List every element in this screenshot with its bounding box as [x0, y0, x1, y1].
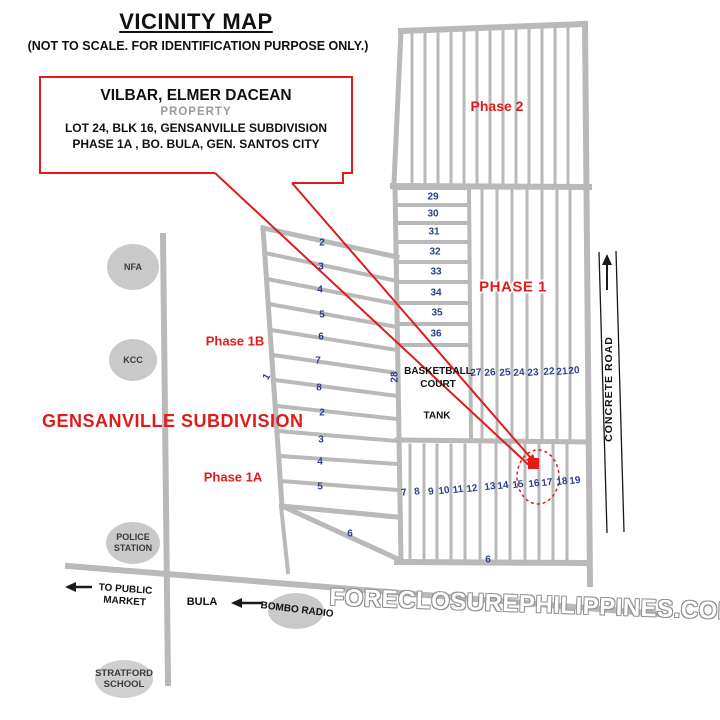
phase1b-label: Phase 1B [206, 334, 265, 349]
lot-number: 19 [569, 475, 582, 487]
stratford-line2: SCHOOL [104, 679, 145, 690]
lot-number: 29 [427, 192, 438, 203]
nfa-label: NFA [124, 262, 142, 272]
police-station-landmark: POLICE STATION [106, 522, 160, 564]
lots-7-19-dividers [410, 445, 567, 559]
tank-label: TANK [423, 411, 450, 422]
lot-number: 4 [317, 285, 323, 296]
phase1a-label: Phase 1A [204, 470, 263, 485]
lot-number: 12 [466, 483, 479, 495]
to-market-arrow-icon [65, 582, 76, 592]
lot-number: 2 [319, 238, 325, 249]
subject-lot-marker [528, 458, 539, 469]
lot-number: 4 [317, 457, 323, 468]
page-subtitle: (NOT TO SCALE. FOR IDENTIFICATION PURPOS… [0, 39, 396, 53]
lot-number: 31 [428, 227, 439, 238]
phase1-lot-dividers [482, 189, 570, 438]
lot-number: 7 [315, 356, 321, 367]
basketball-line2: COURT [404, 378, 472, 391]
lot-number: 3 [318, 435, 324, 446]
lot-number: 30 [427, 209, 438, 220]
property-owner: VILBAR, ELMER DACEAN [40, 86, 352, 105]
property-phase-line: PHASE 1A , BO. BULA, GEN. SANTOS CITY [40, 136, 352, 152]
lot-number: 33 [430, 267, 441, 278]
lot-number: 25 [499, 367, 511, 379]
lot-number: 26 [484, 367, 496, 379]
lot-number: 9 [427, 486, 434, 498]
subdivision-label: GENSANVILLE SUBDIVISION [42, 411, 304, 432]
lot-number: 22 [543, 366, 555, 378]
lot-number: 5 [319, 310, 325, 321]
phase2-label: Phase 2 [471, 98, 524, 114]
lot-number: 7 [400, 487, 407, 499]
lot-number: 24 [513, 367, 525, 379]
lot-number: 16 [528, 478, 541, 490]
bula-label: BULA [187, 596, 218, 608]
to-public-market-label: TO PUBLIC MARKET [97, 582, 152, 610]
vicinity-map: VICINITY MAP (NOT TO SCALE. FOR IDENTIFI… [0, 0, 720, 720]
lot-number: 6 [347, 529, 353, 540]
property-info-box: VILBAR, ELMER DACEAN PROPERTY LOT 24, BL… [40, 77, 352, 174]
police-station-label: POLICE STATION [114, 532, 152, 554]
lot-number: 21 [556, 366, 568, 378]
lot-number: 6 [318, 332, 324, 343]
left-strip-lines [263, 228, 400, 572]
lot-number: 8 [316, 383, 322, 394]
kcc-label: KCC [123, 355, 143, 365]
property-lot-line: LOT 24, BLK 16, GENSANVILLE SUBDIVISION [40, 120, 352, 136]
page-title: VICINITY MAP [40, 9, 352, 35]
lot-number: 13 [484, 481, 497, 493]
lot-number: 8 [413, 486, 420, 498]
lot-number: 18 [556, 476, 569, 488]
kcc-landmark: KCC [109, 339, 157, 381]
police-line2: STATION [114, 543, 152, 553]
lot-number: 28 [390, 371, 401, 382]
to-bula-arrow-icon [231, 598, 242, 608]
property-word: PROPERTY [40, 105, 352, 120]
lot-number: 5 [317, 482, 323, 493]
lot-number: 23 [527, 367, 539, 379]
lot-number: 3 [318, 262, 324, 273]
stratford-school-label: STRATFORD SCHOOL [95, 668, 153, 690]
lot-number: 2 [319, 408, 325, 419]
phase1-label: PHASE 1 [479, 279, 547, 296]
lot-number: 10 [438, 485, 451, 497]
lot-number: 32 [429, 247, 440, 258]
lot-number: 20 [568, 365, 580, 377]
stratford-school-landmark: STRATFORD SCHOOL [95, 660, 153, 698]
lot-number: 35 [431, 308, 442, 319]
lot-number: 11 [452, 484, 464, 496]
lot-number: 15 [512, 479, 525, 491]
nfa-landmark: NFA [107, 244, 159, 290]
lot-number: 34 [430, 288, 441, 299]
concrete-road-arrow-up-icon [602, 254, 612, 265]
police-line1: POLICE [116, 532, 150, 542]
lot-number: 36 [430, 329, 441, 340]
stratford-line1: STRATFORD [95, 668, 153, 679]
concrete-road-label: CONCRETE ROAD [603, 336, 615, 442]
lot-number: 14 [497, 480, 510, 492]
basketball-line1: BASKETBALL [404, 365, 472, 378]
lot-number: 6 [485, 555, 491, 566]
basketball-court-label: BASKETBALL COURT [404, 365, 472, 391]
lot-number: 27 [470, 367, 482, 379]
lot-number: 17 [541, 477, 554, 489]
